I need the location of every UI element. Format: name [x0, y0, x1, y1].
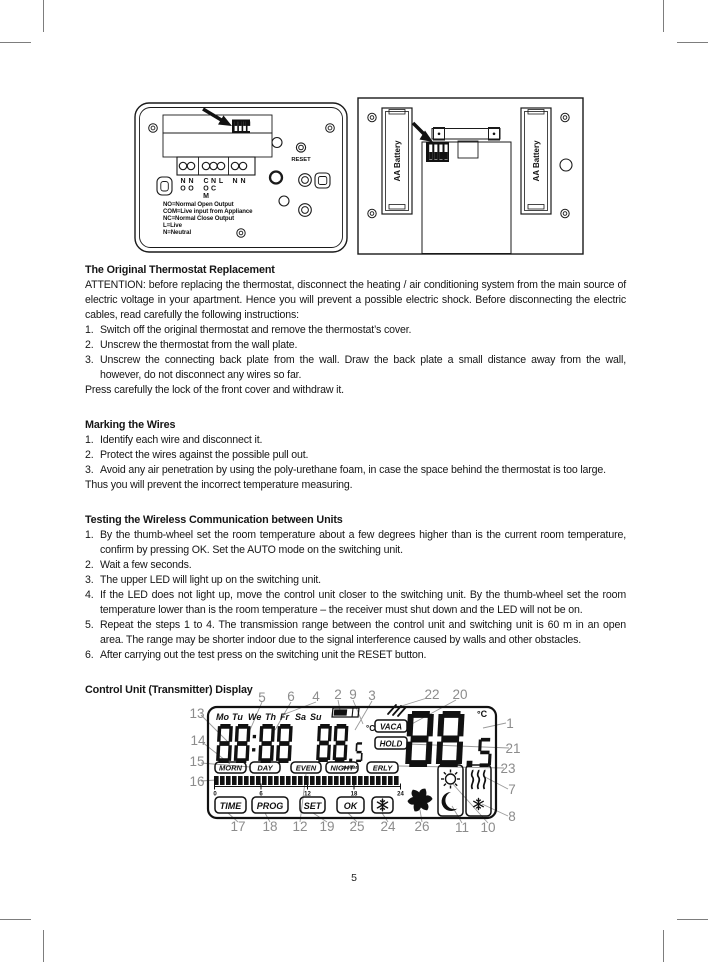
crop-mark [663, 930, 664, 962]
list-item: Protect the wires against the possible p… [85, 448, 626, 463]
lcd-hold-indicator: HOLD [375, 737, 407, 749]
lcd-callout: 15 [189, 754, 204, 769]
lcd-small-temp-unit: °C [366, 724, 375, 733]
battery-compartment-diagram: AA Battery AA Battery [358, 98, 583, 254]
lcd-callout: 19 [319, 819, 334, 834]
svg-text:ERLY: ERLY [373, 764, 393, 773]
lcd-callout: 17 [230, 819, 245, 834]
svg-text:Mo: Mo [216, 712, 229, 722]
svg-text:L: L [219, 178, 224, 185]
list-item: Identify each wire and disconnect it. [85, 433, 626, 448]
svg-text:NIGHT: NIGHT [330, 764, 355, 773]
dip-switch-icon [232, 120, 250, 134]
lcd-timeline: 0 6 12 18 24 [213, 776, 404, 798]
svg-text:M: M [203, 193, 209, 200]
svg-text:TIME: TIME [220, 801, 242, 811]
svg-text:PROG: PROG [257, 801, 284, 811]
page-number: 5 [0, 872, 708, 884]
crop-mark [0, 42, 31, 43]
lcd-callout: 12 [292, 819, 307, 834]
lcd-callout: 22 [424, 687, 439, 702]
lcd-callout: 6 [287, 689, 295, 704]
svg-text:N: N [240, 178, 245, 185]
battery-icon [332, 708, 359, 717]
heat-frost-indicator [466, 765, 491, 816]
lcd-period-labels: MORN DAY EVEN NIGHT ERLY [215, 762, 398, 773]
list-item: Avoid any air penetration by using the p… [85, 463, 626, 478]
svg-text:MORN: MORN [219, 764, 242, 773]
list-item: Switch off the original thermostat and r… [85, 323, 626, 338]
lcd-callout: 4 [312, 689, 320, 704]
thermostat-backplate-diagram: N O N O C O M N C L N N RESET [135, 103, 347, 252]
list-item: The upper LED will light up on the switc… [85, 573, 626, 588]
lcd-callout: 2 [334, 687, 342, 702]
lcd-vaca-indicator: VACA [375, 720, 407, 732]
svg-text:N: N [232, 178, 237, 185]
lcd-callout: 8 [508, 809, 516, 824]
lcd-callout: 26 [414, 819, 429, 834]
lcd-time-display [216, 724, 293, 763]
manual-text: The Original Thermostat Replacement ATTE… [85, 263, 626, 698]
sun-icon [441, 770, 460, 789]
list-item: Repeat the steps 1 to 4. The transmissio… [85, 618, 626, 648]
svg-text:Fr: Fr [280, 712, 289, 722]
svg-text:N: N [211, 178, 216, 185]
lcd-callout: 18 [262, 819, 277, 834]
lcd-small-temp-display [316, 724, 364, 762]
svg-text:COM=Live input from Appliance: COM=Live input from Appliance [163, 208, 253, 215]
svg-text:0: 0 [213, 792, 217, 798]
crop-mark [0, 919, 31, 920]
svg-text:N=Neutral: N=Neutral [163, 229, 191, 236]
lcd-buttons: TIME PROG SET OK [215, 797, 393, 813]
lcd-callout: 13 [189, 706, 204, 721]
svg-text:Sa: Sa [295, 712, 306, 722]
crop-mark [677, 42, 708, 43]
section-testing-wireless: Testing the Wireless Communication betwe… [85, 513, 626, 663]
battery-slot-left: AA Battery [382, 108, 412, 214]
lcd-callout: 11 [455, 820, 469, 835]
svg-text:C: C [203, 178, 208, 185]
svg-text:C: C [211, 186, 216, 193]
svg-text:L=Live: L=Live [163, 222, 183, 229]
svg-text:N: N [188, 178, 193, 185]
battery-label: AA Battery [532, 140, 541, 182]
fan-icon [408, 787, 433, 813]
lcd-big-temp-unit: °C [477, 709, 488, 719]
instruction-list: Switch off the original thermostat and r… [85, 323, 626, 383]
lcd-callout: 21 [505, 741, 520, 756]
terminal-labels: N O N O C O M N C L N N [180, 178, 245, 200]
reset-button-icon: RESET [291, 143, 311, 163]
section-marking-the-wires: Marking the Wires Identify each wire and… [85, 418, 626, 493]
moon-icon [442, 792, 458, 811]
svg-text:Tu: Tu [232, 712, 243, 722]
terminal-block [177, 157, 255, 175]
arrow-icon [203, 109, 232, 126]
lcd-callout: 3 [368, 688, 376, 703]
list-item: By the thumb-wheel set the room temperat… [85, 528, 626, 558]
lcd-callout: 16 [189, 774, 204, 789]
svg-text:Th: Th [265, 712, 276, 722]
svg-text:O: O [203, 186, 209, 193]
list-item: Wait a few seconds. [85, 558, 626, 573]
section-heading: Marking the Wires [85, 418, 626, 433]
section-paragraph: Thus you will prevent the incorrect temp… [85, 478, 626, 493]
frost-icon [474, 798, 484, 809]
crop-mark [677, 919, 708, 920]
lcd-callout: 7 [508, 782, 516, 797]
lcd-callout: 10 [480, 820, 495, 835]
terminal-legend: NO=Normal Open Output COM=Live input fro… [163, 201, 253, 236]
instruction-list: Identify each wire and disconnect it. Pr… [85, 433, 626, 478]
svg-text:O: O [180, 186, 186, 193]
lcd-callout: 9 [349, 687, 357, 702]
crop-mark [663, 0, 664, 32]
lcd-day-labels: MoTu WeTh FrSa Su [216, 712, 322, 722]
svg-text:HOLD: HOLD [380, 740, 403, 749]
lcd-callout: 5 [258, 690, 266, 705]
svg-text:NO=Normal Open Output: NO=Normal Open Output [163, 201, 234, 208]
lcd-callout: 14 [190, 733, 206, 748]
svg-text:NC=Normal Close Output: NC=Normal Close Output [163, 215, 234, 222]
svg-text:24: 24 [397, 792, 404, 798]
snowflake-button-icon [377, 799, 387, 811]
section-paragraph: Press carefully the lock of the front co… [85, 383, 626, 398]
svg-text:Su: Su [310, 712, 322, 722]
heat-icon [472, 770, 486, 789]
arrow-icon [413, 123, 433, 142]
lcd-callout: 23 [500, 761, 515, 776]
battery-slot-right: AA Battery [521, 108, 551, 214]
svg-text:N: N [180, 178, 185, 185]
battery-label: AA Battery [393, 140, 402, 182]
hardware-diagrams: N O N O C O M N C L N N RESET [125, 95, 590, 260]
manual-page: N O N O C O M N C L N N RESET [0, 0, 708, 962]
list-item: Unscrew the connecting back plate from t… [85, 353, 626, 383]
lcd-big-temp-display [405, 711, 494, 767]
list-item: If the LED does not light up, move the c… [85, 588, 626, 618]
svg-text:DAY: DAY [257, 764, 273, 773]
dip-switch-icon [426, 142, 449, 162]
lcd-callout: 1 [506, 716, 514, 731]
crop-mark [43, 930, 44, 962]
section-heading: The Original Thermostat Replacement [85, 263, 626, 278]
lcd-callout: 24 [380, 819, 396, 834]
svg-text:OK: OK [344, 801, 359, 811]
lcd-callout: 25 [349, 819, 364, 834]
section-paragraph: ATTENTION: before replacing the thermost… [85, 278, 626, 323]
svg-text:SET: SET [304, 801, 323, 811]
section-thermostat-replacement: The Original Thermostat Replacement ATTE… [85, 263, 626, 398]
crop-mark [43, 0, 44, 32]
svg-text:VACA: VACA [380, 723, 402, 732]
svg-text:EVEN: EVEN [296, 764, 317, 773]
list-item: Unscrew the thermostat from the wall pla… [85, 338, 626, 353]
lcd-callout: 20 [452, 687, 467, 702]
section-heading: Testing the Wireless Communication betwe… [85, 513, 626, 528]
instruction-list: By the thumb-wheel set the room temperat… [85, 528, 626, 663]
lcd-display-diagram: MoTu WeTh FrSa Su °C ROOM VACA HOLD [180, 680, 530, 845]
reset-label: RESET [291, 157, 311, 163]
list-item: After carrying out the test press on the… [85, 648, 626, 663]
svg-text:O: O [188, 186, 194, 193]
svg-text:We: We [248, 712, 261, 722]
